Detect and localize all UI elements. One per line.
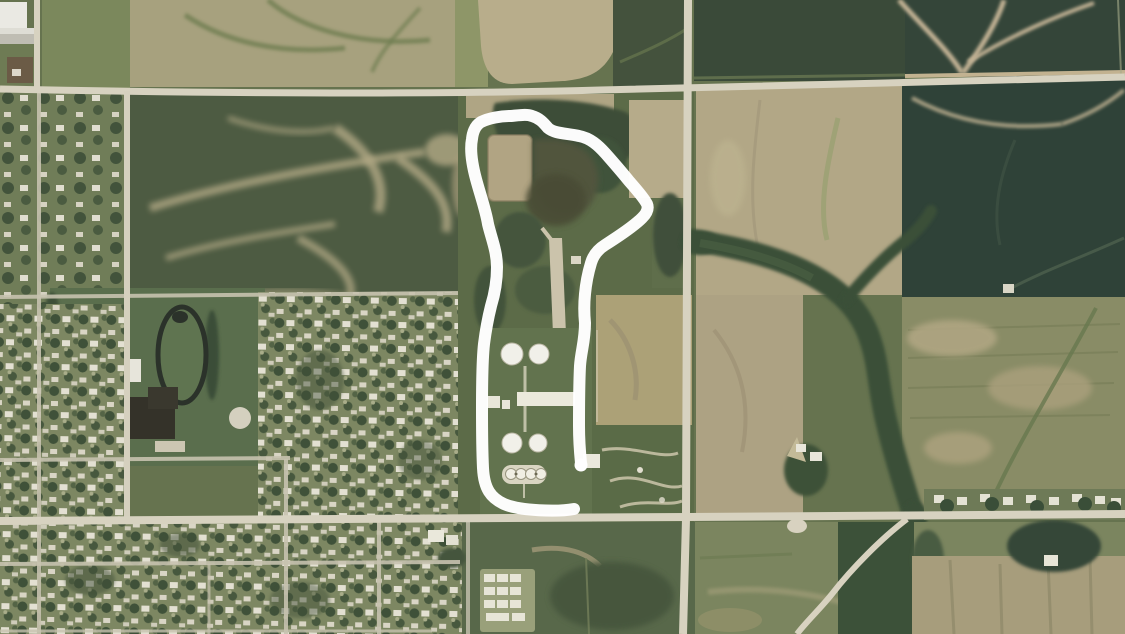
- street-h-563: [0, 562, 460, 564]
- farmstead-building-1: [796, 444, 806, 452]
- res-tree-blob-5: [160, 533, 200, 557]
- se-tan-patch-2: [988, 366, 1092, 410]
- rural-house-2: [957, 497, 967, 505]
- rural-tree-4: [1078, 497, 1092, 511]
- res-tree-blob-3: [296, 350, 344, 410]
- rural-house-8: [1095, 496, 1105, 504]
- res-tree-blob-1: [65, 565, 115, 595]
- ann-bare-square-field: [488, 135, 532, 201]
- storage-unit-1: [484, 574, 495, 582]
- storage-unit-9: [510, 600, 521, 608]
- top-tan-center-field: [478, 0, 613, 84]
- se-tan-patch-3: [924, 432, 992, 464]
- storage-tank-3: [502, 433, 522, 453]
- facility-small-building-1: [487, 396, 500, 408]
- school-parking: [155, 441, 185, 452]
- nw-green-field: [42, 0, 130, 88]
- storage-unit-8: [497, 600, 508, 608]
- br-se-streak-4: [1090, 558, 1092, 634]
- park-speck-1: [637, 467, 643, 473]
- track-top-blob: [172, 311, 188, 323]
- storage-unit-7: [484, 600, 495, 608]
- ann-trees-mid-2: [515, 266, 575, 314]
- storage-tank-4: [529, 434, 547, 452]
- right-tan-light-blob: [710, 140, 746, 216]
- main-road-vertical-center: [683, 0, 688, 634]
- ann-white-speck-1: [571, 256, 581, 264]
- bc-white-building-2: [446, 535, 458, 545]
- res-tree-blob-2: [270, 582, 330, 618]
- bc-dark-patch: [550, 562, 674, 630]
- storage-tank-2: [529, 344, 549, 364]
- ann-trees-east: [653, 193, 687, 277]
- br-tree-corridor: [838, 522, 914, 634]
- campus-small-white-spot: [229, 407, 251, 429]
- storage-unit-3: [510, 574, 521, 582]
- culdesac-bulb: [787, 519, 807, 533]
- br-tan-blob: [698, 608, 762, 632]
- res-tree-blob-4: [398, 440, 442, 480]
- route-annotation-endpoint: [575, 459, 588, 472]
- clarifier-dot-2: [535, 473, 538, 476]
- residential-west2-texture: [0, 304, 124, 522]
- br-se-streak-2: [1000, 564, 1002, 634]
- street-h-459: [0, 458, 290, 460]
- storage-tank-1: [501, 343, 523, 365]
- rural-house-4: [1003, 497, 1013, 505]
- facility-small-building-2: [502, 400, 510, 409]
- east-tan-field: [596, 295, 692, 425]
- storage-unit-11: [512, 613, 525, 621]
- storage-unit-6: [510, 587, 521, 595]
- nw-house-roof: [12, 69, 21, 76]
- storage-unit-2: [497, 574, 508, 582]
- park-speck-2: [659, 497, 665, 503]
- satellite-map-view: [0, 0, 1125, 634]
- storage-unit-5: [497, 587, 508, 595]
- bc-trees: [438, 548, 466, 568]
- rural-tree-1: [940, 499, 954, 513]
- nw-gray-lot: [0, 34, 34, 44]
- facility-long-building: [517, 392, 575, 406]
- storage-unit-4: [484, 587, 495, 595]
- ne-white-speck: [1003, 284, 1014, 293]
- clarifier-dot-1: [515, 473, 518, 476]
- storage-unit-10: [486, 613, 509, 621]
- rural-tree-2: [985, 497, 999, 511]
- se-tan-patch-1: [907, 320, 997, 356]
- bc-white-building-1: [428, 530, 444, 542]
- top-darkgreen-center: [613, 0, 690, 87]
- school-building-dark-2: [148, 387, 178, 409]
- farmstead-building-2: [810, 452, 822, 461]
- nw-white-building: [0, 2, 27, 32]
- west-residential-texture: [0, 92, 124, 304]
- rural-house-6: [1049, 497, 1059, 505]
- map-svg: [0, 0, 1125, 634]
- residential-mid-texture: [258, 292, 475, 522]
- br-white-house: [1044, 555, 1058, 566]
- ne-darkgreen-1: [694, 0, 905, 81]
